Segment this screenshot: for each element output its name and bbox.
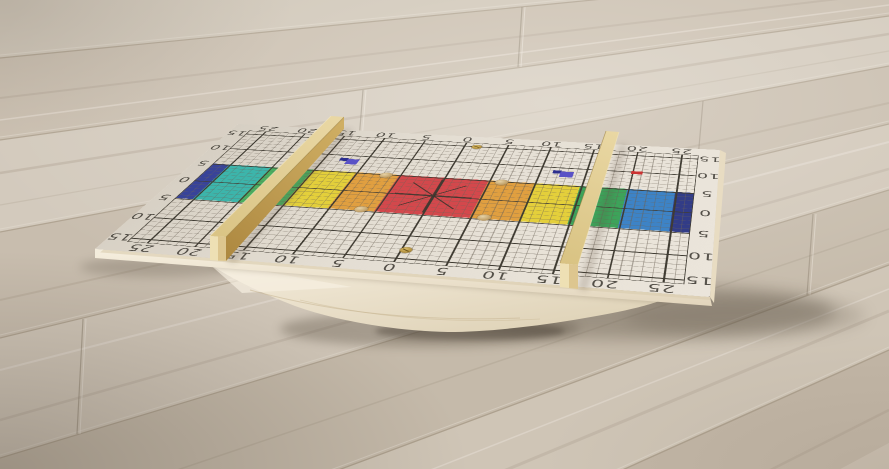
guide-rails [0, 0, 889, 469]
right-rail [560, 131, 628, 291]
left-rail [210, 116, 353, 263]
scene-balance-board-on-wood-floor: 2525202015151010550055101015152020252515… [0, 0, 889, 469]
